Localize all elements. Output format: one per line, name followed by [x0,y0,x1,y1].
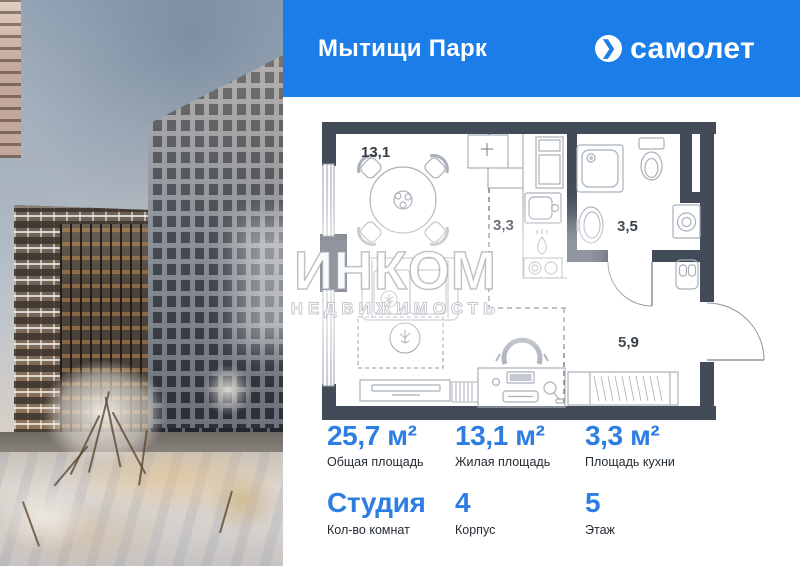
stat-kitchen-area: 3,3 м² Площадь кухни [585,421,745,469]
sofa [362,258,458,320]
header-banner: Мытищи Парк ❯ самолет [283,0,800,97]
room-area-label: 5,9 [618,334,639,351]
stove [537,229,547,254]
building-photo [0,0,283,566]
radiator [452,382,478,402]
samolet-wordmark: самолет [630,32,755,66]
entrance-door-arc [707,303,764,360]
project-title: Мытищи Парк [318,35,487,63]
stat-rooms: Студия Кол-во комнат [327,488,455,536]
kitchen-sink [525,193,561,223]
samolet-logo: ❯ самолет [595,32,755,66]
rug [358,317,443,368]
fridge [536,137,563,188]
desk-lamp [544,382,565,403]
building-far-left [0,0,21,158]
desk [478,368,565,407]
stat-floor: 5 Этаж [585,488,745,536]
stat-total-area: 25,7 м² Общая площадь [327,421,455,469]
office-chair [496,340,548,364]
burners [524,258,562,278]
apartment-stats: 25,7 м² Общая площадь 13,1 м² Жилая площ… [327,421,745,537]
room-area-label: 3,3 [493,217,514,234]
bench [676,260,698,289]
dry-grass-bush [195,455,283,547]
dining-chairs [354,151,452,249]
vent-shaft [468,135,523,188]
room-area-label: 3,5 [617,218,638,235]
flyer-content: Мытищи Парк ❯ самолет [283,0,800,566]
dining-table [370,167,436,233]
toilet [639,138,664,180]
room-area-label: 13,1 [361,144,390,161]
stat-living-area: 13,1 м² Жилая площадь [455,421,585,469]
bathroom-door-arc [608,262,652,306]
frosted-tree [196,352,260,428]
shower [577,145,623,192]
frosted-bush-left [0,468,103,566]
washing-machine [673,205,700,238]
samolet-arrow-icon: ❯ [595,35,622,62]
stat-building: 4 Корпус [455,488,585,536]
wardrobe [568,372,678,405]
tv-console [360,380,450,401]
plant-pot [381,291,397,307]
bathroom-sink [577,207,603,243]
